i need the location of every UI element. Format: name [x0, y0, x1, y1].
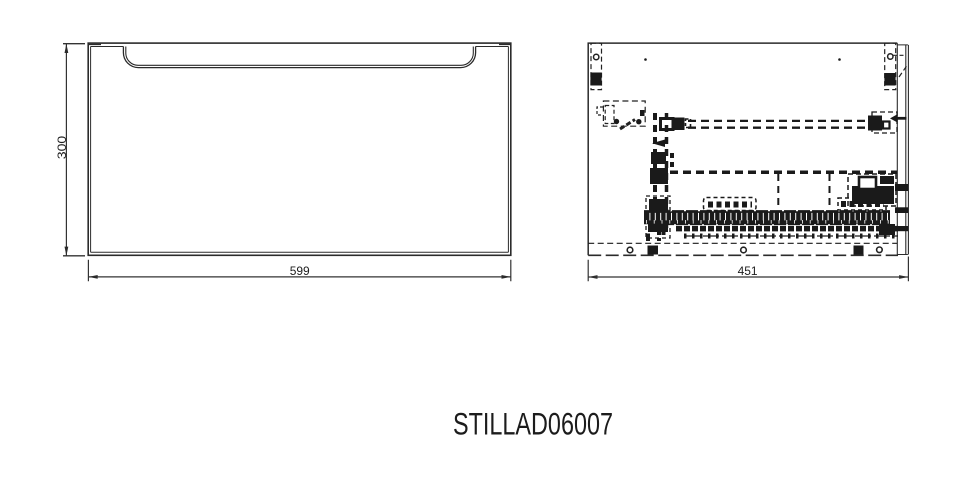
svg-text:599: 599	[290, 264, 310, 278]
svg-text:451: 451	[738, 264, 758, 278]
svg-text:STILLAD06007: STILLAD06007	[453, 406, 613, 442]
svg-text:300: 300	[55, 136, 69, 160]
